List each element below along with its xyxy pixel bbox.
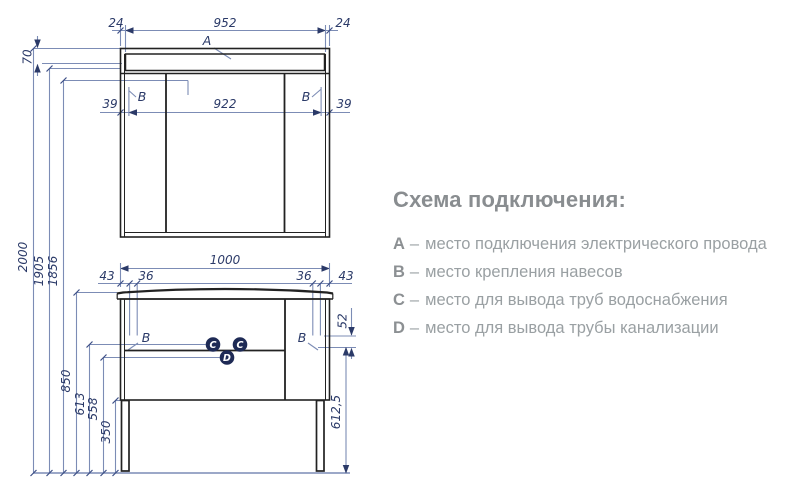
legend-desc-b: место крепления навесов (425, 263, 622, 281)
legend-desc-a: место подключения электрического провода (425, 235, 767, 253)
marker-c-letter-right: C (237, 340, 244, 351)
light-fixture-hatch (126, 54, 325, 71)
right-leg (317, 401, 325, 472)
connection-legend: Схема подключения: A–место подключения э… (393, 188, 793, 342)
mirror-cabinet (121, 49, 330, 238)
installation-scheme-page: 24 952 24 70 39 922 39 2000 1905 1856 85… (0, 0, 800, 498)
legend-key-b: B (393, 263, 405, 281)
dim-36-left: 36 (138, 269, 154, 283)
legend-desc-d: место для вывода трубы канализации (425, 319, 718, 337)
dim-1000: 1000 (210, 253, 241, 267)
legend-key-c: C (393, 291, 405, 309)
marker-b-vanity-left: B (142, 330, 151, 345)
dim-1905: 1905 (32, 256, 46, 287)
legend-title: Схема подключения: (393, 188, 793, 212)
countertop-curve (117, 289, 333, 294)
dim-558: 558 (86, 397, 100, 420)
legend-key-d: D (393, 319, 405, 337)
dim-43-left: 43 (99, 269, 114, 283)
legend-desc-c: место для вывода труб водоснабжения (425, 291, 728, 309)
dim-39-right: 39 (336, 97, 351, 111)
marker-b-vanity-right: B (298, 330, 307, 345)
legend-item-d: D–место для вывода трубы канализации (393, 314, 793, 342)
legend-separator: – (405, 263, 425, 281)
dim-24-left: 24 (108, 16, 123, 30)
dim-2000: 2000 (16, 241, 30, 272)
vanity-cabinet (117, 289, 333, 471)
dim-612-5: 612,5 (329, 395, 343, 429)
dim-952: 952 (214, 16, 237, 30)
legend-separator: – (405, 235, 425, 253)
dim-613: 613 (73, 393, 87, 416)
dim-350: 350 (99, 420, 113, 443)
marker-b-mirror-right: B (302, 89, 311, 104)
marker-c-letter-left: C (210, 340, 217, 351)
legend-separator: – (405, 319, 425, 337)
legend-item-b: B–место крепления навесов (393, 258, 793, 286)
dim-70: 70 (21, 49, 35, 65)
dim-922: 922 (214, 97, 237, 111)
dim-39-left: 39 (102, 97, 117, 111)
legend-item-c: C–место для вывода труб водоснабжения (393, 286, 793, 314)
dim-52: 52 (336, 313, 350, 328)
marker-d-letter: D (223, 353, 231, 364)
dim-24-right: 24 (335, 16, 350, 30)
dim-36-right: 36 (296, 269, 312, 283)
legend-separator: – (405, 291, 425, 309)
dim-43-right: 43 (338, 269, 353, 283)
legend-key-a: A (393, 235, 405, 253)
marker-b-mirror-left: B (138, 89, 147, 104)
dim-850: 850 (59, 369, 73, 392)
legend-item-a: A–место подключения электрического прово… (393, 230, 793, 258)
left-leg (122, 401, 130, 472)
dim-1856: 1856 (46, 255, 60, 286)
marker-a-label: A (202, 33, 212, 48)
